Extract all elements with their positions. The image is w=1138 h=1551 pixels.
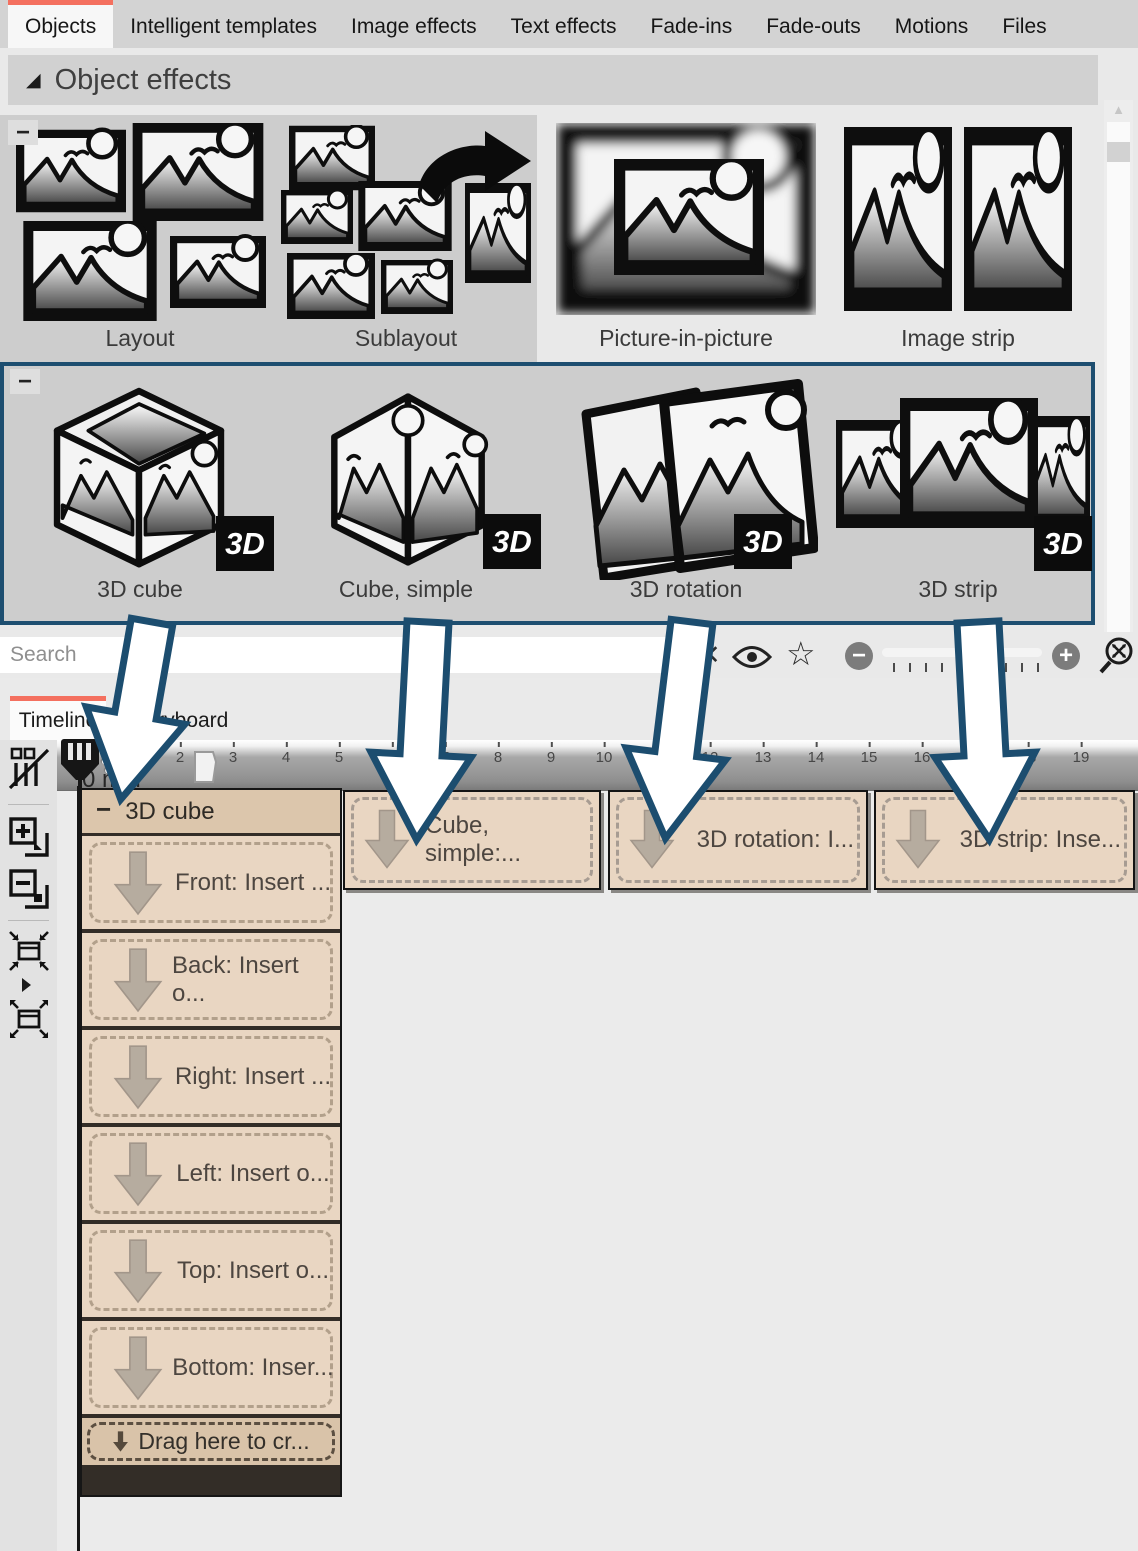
slider-tick xyxy=(893,663,895,672)
ruler-number: 3 xyxy=(229,749,237,766)
drop-arrow-icon xyxy=(112,1335,164,1401)
sublayout-thumbnail xyxy=(279,123,535,323)
ruler-number: 13 xyxy=(755,749,772,766)
drop-arrow-icon xyxy=(112,1238,164,1304)
drop-arrow-icon xyxy=(112,1044,164,1110)
object-effects-palette: ◢ Object effects − Layout xyxy=(0,48,1138,632)
ruler-number: 8 xyxy=(494,749,502,766)
tab-image-effects[interactable]: Image effects xyxy=(334,0,494,48)
slider-tick xyxy=(1021,663,1023,672)
clip-label: Cube, simple:... xyxy=(425,792,587,888)
ruler-number: 10 xyxy=(596,749,613,766)
search-input[interactable] xyxy=(0,637,696,673)
palette-item-label: Layout xyxy=(8,325,272,352)
app-window: { "colors": {"accent_red":"#f4705f","sel… xyxy=(0,0,1138,1551)
ruler-number: 19 xyxy=(1073,749,1090,766)
palette-row-layouts: − Layout Sublayout xyxy=(0,115,1138,362)
timeline-clip-3d-rotation[interactable]: 3D rotation: I... xyxy=(608,790,868,890)
track-label: Left: Insert o... xyxy=(172,1127,334,1220)
drop-arrow-icon xyxy=(112,1430,129,1453)
drop-arrow-icon xyxy=(894,808,942,870)
scroll-up-icon[interactable]: ▲ xyxy=(1104,102,1133,117)
marker-flag-icon[interactable] xyxy=(192,750,218,784)
palette-item-label: 3D strip xyxy=(826,576,1090,603)
zoom-slider[interactable] xyxy=(882,648,1042,657)
track-placeholder-bottom[interactable]: Bottom: Inser... xyxy=(82,1321,340,1414)
collapse-triangle-icon: ◢ xyxy=(26,69,41,92)
timeline-tab-bar: Timeline Storyboard xyxy=(0,678,1138,740)
flyout-arrow-icon[interactable] xyxy=(22,978,31,992)
image-strip-thumbnail xyxy=(830,123,1086,315)
ruler-number: 9 xyxy=(547,749,555,766)
palette-scrollbar[interactable]: ▲ ▼ xyxy=(1104,100,1133,692)
divider xyxy=(8,920,49,921)
drop-arrow-icon xyxy=(112,947,164,1013)
tab-intelligent-templates[interactable]: Intelligent templates xyxy=(113,0,334,48)
palette-item-label: Cube, simple xyxy=(275,576,537,603)
track-label: Front: Insert ... xyxy=(172,836,334,929)
slider-tick xyxy=(989,663,991,672)
ruler-number: 16 xyxy=(914,749,931,766)
palette-item-label: 3D rotation xyxy=(552,576,820,603)
layout-thumbnail xyxy=(14,123,266,323)
ruler-number: 11 xyxy=(649,749,665,766)
timeline-group-3d-cube[interactable]: − 3D cube Front: Insert ... Back: Insert… xyxy=(80,788,342,1497)
track-placeholder-left[interactable]: Left: Insert o... xyxy=(82,1127,340,1220)
slider-tick xyxy=(957,663,959,672)
drop-arrow-icon xyxy=(628,808,676,870)
track-label: Right: Insert ... xyxy=(172,1030,334,1123)
ruler-number: 5 xyxy=(335,749,343,766)
drop-arrow-icon xyxy=(112,850,164,916)
tab-objects[interactable]: Objects xyxy=(8,0,113,48)
section-header-object-effects[interactable]: ◢ Object effects xyxy=(8,55,1098,105)
zoom-out-button[interactable]: − xyxy=(845,642,873,670)
slider-tick xyxy=(973,663,975,672)
track-placeholder-front[interactable]: Front: Insert ... xyxy=(82,836,340,929)
timeline-tool-column xyxy=(0,740,57,1551)
track-placeholder-right[interactable]: Right: Insert ... xyxy=(82,1030,340,1123)
palette-item-label: 3D cube xyxy=(8,576,272,603)
ruler-number: 15 xyxy=(861,749,878,766)
3d-badge: 3D xyxy=(216,516,274,571)
scrollbar-thumb[interactable] xyxy=(1107,142,1130,162)
palette-item-layout[interactable]: Layout xyxy=(8,115,272,362)
playhead-marker[interactable] xyxy=(60,738,100,788)
ruler-number: 6 xyxy=(388,749,396,766)
expand-view-button[interactable] xyxy=(8,998,50,1040)
palette-item-3d-rotation[interactable]: 3D 3D rotation xyxy=(552,366,820,613)
ruler-number: 18 xyxy=(1020,749,1037,766)
collapse-group-button[interactable]: − xyxy=(10,369,40,394)
drag-here-drop-zone[interactable]: Drag here to cr... xyxy=(82,1418,340,1465)
slider-tick xyxy=(1005,663,1007,672)
ruler-number: 14 xyxy=(808,749,825,766)
divider xyxy=(8,804,49,805)
tab-fade-ins[interactable]: Fade-ins xyxy=(634,0,750,48)
magnifier-reset-icon[interactable] xyxy=(1098,636,1134,674)
toggle-track-display-icon[interactable] xyxy=(8,746,50,790)
ruler-number: 4 xyxy=(282,749,290,766)
drop-zone-label: Drag here to cr... xyxy=(138,1428,309,1455)
favorites-star-icon[interactable]: ☆ xyxy=(786,634,816,673)
picture-in-picture-thumbnail xyxy=(556,123,816,315)
group-header[interactable]: − 3D cube xyxy=(82,790,340,833)
palette-item-cube-simple[interactable]: 3D Cube, simple xyxy=(275,366,537,613)
timeline-panel: Timeline Storyboard xyxy=(0,678,1138,1551)
slider-tick xyxy=(925,663,927,672)
tab-text-effects[interactable]: Text effects xyxy=(494,0,634,48)
timeline-clip-3d-strip[interactable]: 3D strip: Inse... xyxy=(874,790,1135,890)
clip-label: 3D strip: Inse... xyxy=(956,792,1121,888)
palette-item-picture-in-picture[interactable]: Picture-in-picture xyxy=(552,115,820,362)
slider-tick xyxy=(941,663,943,672)
palette-item-image-strip[interactable]: Image strip xyxy=(826,115,1090,362)
palette-item-3d-strip[interactable]: 3D 3D strip xyxy=(826,366,1090,613)
track-placeholder-top[interactable]: Top: Insert o... xyxy=(82,1224,340,1317)
timeline-clip-cube-simple[interactable]: Cube, simple:... xyxy=(343,790,601,890)
tab-timeline[interactable]: Timeline xyxy=(10,696,106,740)
palette-toolbar: ✕ ☆ − + xyxy=(0,632,1138,678)
drop-arrow-icon xyxy=(363,808,411,870)
slider-tick xyxy=(909,663,911,672)
track-label: Back: Insert o... xyxy=(172,933,334,1026)
ruler-number: 7 xyxy=(441,749,449,766)
tab-files[interactable]: Files xyxy=(985,0,1063,48)
eye-icon[interactable] xyxy=(732,644,772,670)
palette-item-sublayout[interactable]: Sublayout xyxy=(275,115,537,362)
shrink-view-button[interactable] xyxy=(8,930,50,972)
scrollbar-track[interactable] xyxy=(1107,122,1130,668)
tab-storyboard[interactable]: Storyboard xyxy=(110,696,244,740)
clip-label: 3D rotation: I... xyxy=(690,792,854,888)
collapse-all-tracks-button[interactable] xyxy=(8,868,50,910)
group-title: 3D cube xyxy=(125,798,214,826)
ruler-number: 12 xyxy=(702,749,719,766)
section-title: Object effects xyxy=(55,64,232,97)
ribbon-tab-bar: Objects Intelligent templates Image effe… xyxy=(0,0,1138,48)
ruler-number: 2 xyxy=(176,749,184,766)
track-label: Top: Insert o... xyxy=(172,1224,334,1317)
track-label: Bottom: Inser... xyxy=(172,1321,334,1414)
ruler-number: 17 xyxy=(967,749,984,766)
palette-item-label: Image strip xyxy=(826,325,1090,352)
timeline-ruler[interactable]: 1 2 3 4 5 6 7 8 9 10 11 12 13 14 15 16 1… xyxy=(57,740,1138,791)
3d-badge: 3D xyxy=(734,514,792,569)
collapse-group-button[interactable]: − xyxy=(8,120,38,145)
clear-search-icon[interactable]: ✕ xyxy=(698,640,721,671)
collapse-group-icon[interactable]: − xyxy=(96,794,111,825)
tab-fade-outs[interactable]: Fade-outs xyxy=(749,0,878,48)
slider-tick xyxy=(1037,663,1039,672)
tab-motions[interactable]: Motions xyxy=(878,0,986,48)
drop-arrow-icon xyxy=(112,1141,164,1207)
palette-item-label: Picture-in-picture xyxy=(552,325,820,352)
3d-badge: 3D xyxy=(1034,516,1092,571)
3d-badge: 3D xyxy=(483,514,541,569)
palette-item-3d-cube[interactable]: 3D 3D cube xyxy=(8,366,272,613)
zoom-in-button[interactable]: + xyxy=(1052,642,1080,670)
expand-all-tracks-button[interactable] xyxy=(8,816,50,858)
palette-item-label: Sublayout xyxy=(275,325,537,352)
track-placeholder-back[interactable]: Back: Insert o... xyxy=(82,933,340,1026)
